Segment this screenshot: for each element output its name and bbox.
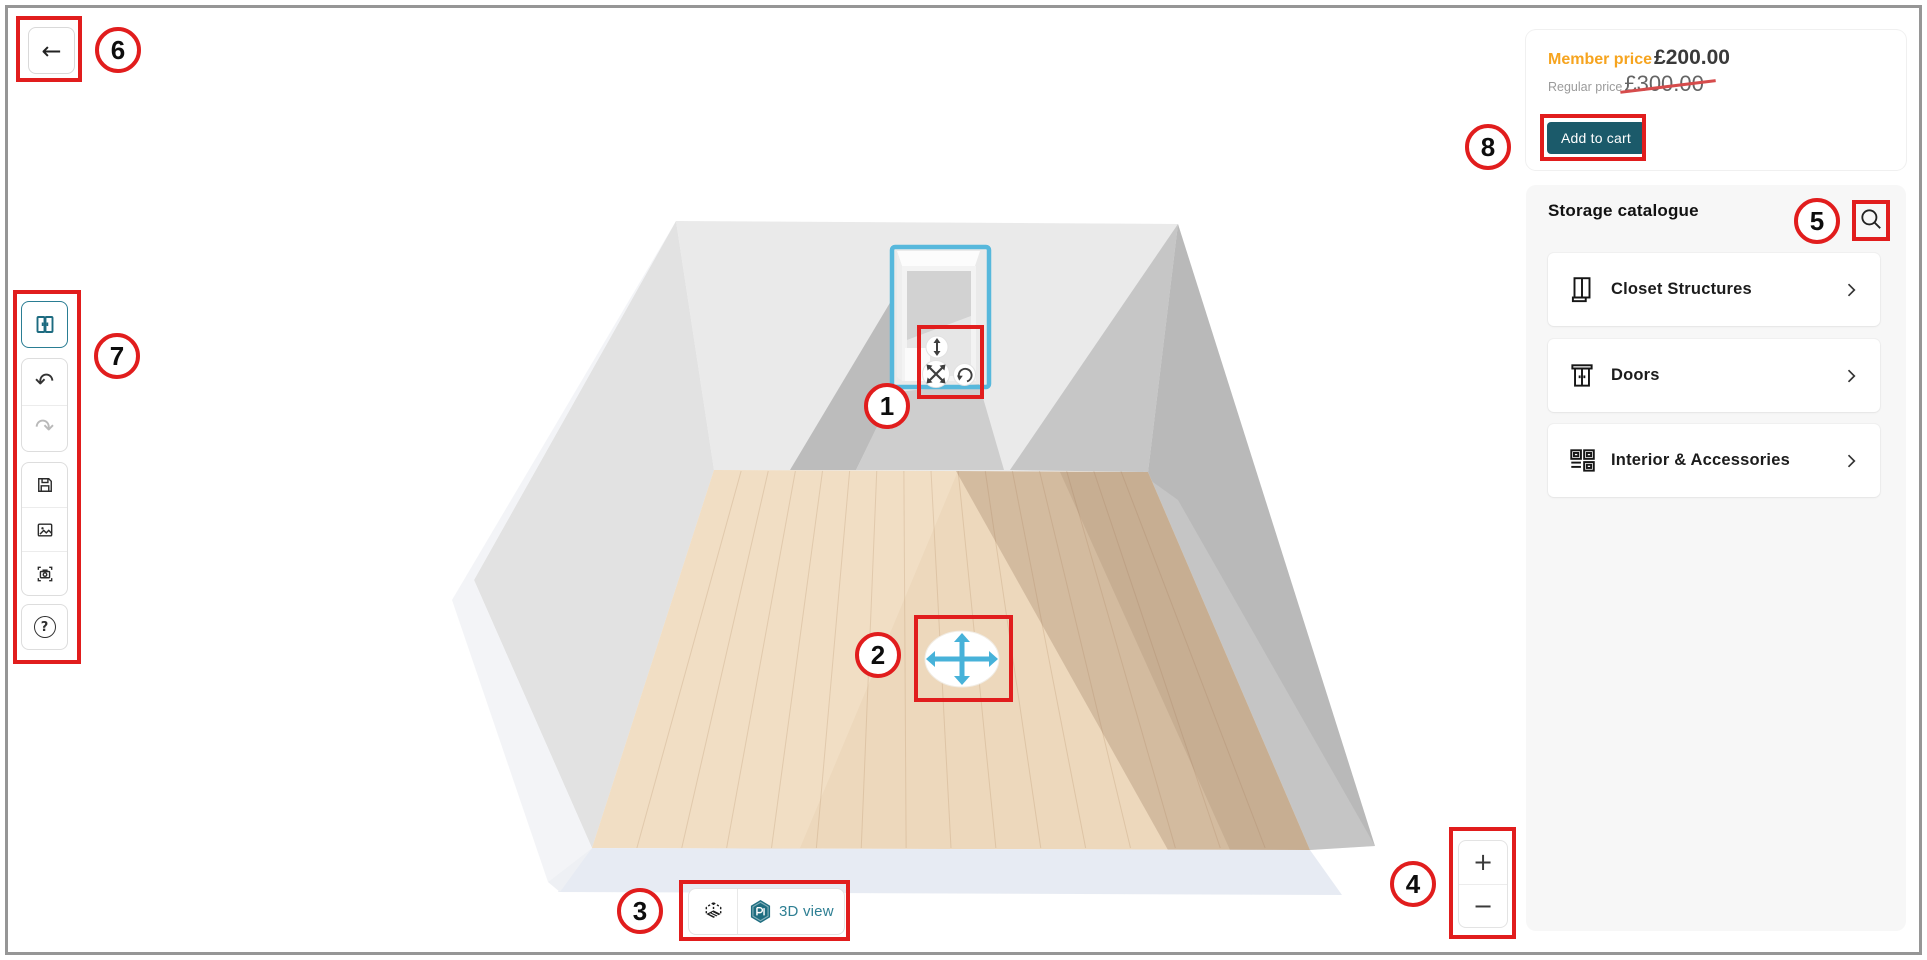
annotation-rect-search	[1852, 200, 1890, 241]
regular-price-row: Regular price £300.00	[1548, 71, 1884, 97]
annotation-rect-zoom-control	[1449, 827, 1516, 939]
catalogue-item-label: Interior & Accessories	[1611, 451, 1790, 470]
catalogue-item-closet-structures[interactable]: Closet Structures	[1548, 253, 1880, 326]
annotation-rect-view-toggle	[679, 880, 850, 941]
room-planner-app: ← ↶ ↷	[0, 0, 1927, 960]
regular-price-value: £300.00	[1624, 71, 1704, 97]
chevron-right-icon	[1841, 451, 1861, 471]
annotation-marker-8: 8	[1465, 124, 1511, 170]
annotation-marker-3: 3	[617, 888, 663, 934]
catalogue-item-interior-accessories[interactable]: Interior & Accessories	[1548, 424, 1880, 497]
annotation-rect-back-button	[16, 16, 82, 82]
catalogue-item-label: Closet Structures	[1611, 280, 1752, 299]
annotation-rect-toolbar	[13, 290, 81, 664]
chevron-right-icon	[1841, 366, 1861, 386]
member-price-value: £200.00	[1654, 46, 1730, 70]
annotation-marker-7: 7	[94, 333, 140, 379]
annotation-marker-5: 5	[1794, 198, 1840, 244]
regular-price-label: Regular price	[1548, 80, 1622, 94]
annotation-rect-handles	[917, 325, 984, 399]
front-apron	[558, 848, 1342, 895]
catalogue-item-doors[interactable]: Doors	[1548, 339, 1880, 412]
doors-icon	[1567, 361, 1597, 391]
member-price-row: Member price £200.00	[1548, 46, 1884, 70]
storage-catalogue-panel: Storage catalogue Closet Structures	[1526, 185, 1906, 931]
annotation-rect-move-gizmo	[914, 615, 1013, 702]
wardrobe-top-face	[897, 251, 980, 266]
catalogue-item-label: Doors	[1611, 366, 1660, 385]
wardrobe-left-face	[897, 251, 902, 381]
annotation-marker-4: 4	[1390, 861, 1436, 907]
annotation-rect-add-to-cart	[1540, 114, 1646, 161]
interior-accessories-icon	[1567, 446, 1597, 476]
catalogue-title: Storage catalogue	[1548, 201, 1699, 221]
annotation-marker-1: 1	[864, 383, 910, 429]
closet-structures-icon	[1567, 275, 1597, 305]
member-price-label: Member price	[1548, 51, 1652, 69]
chevron-right-icon	[1841, 280, 1861, 300]
annotation-marker-6: 6	[95, 27, 141, 73]
annotation-marker-2: 2	[855, 632, 901, 678]
